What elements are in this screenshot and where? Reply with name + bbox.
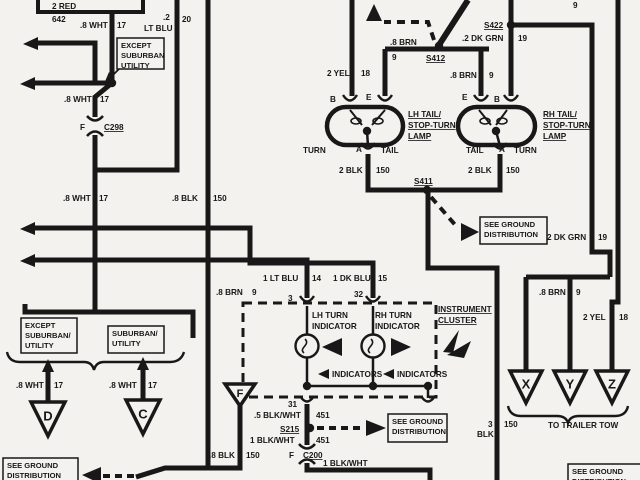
w2yel18-b: 2 YEL <box>583 313 606 322</box>
wiring-diagram-page: XYZDCFEXCEPTSUBURBANUTILITYSEE GROUNDDIS… <box>0 0 640 480</box>
cluster-dot-2 <box>369 382 377 390</box>
callout-except-suburban-utility-top-line-1: SUBURBAN <box>121 51 164 60</box>
connector-d-letter: D <box>43 408 52 423</box>
lh-turn-lbl: TURN <box>303 146 326 155</box>
lamp-lh-dot <box>363 127 371 135</box>
rh-lamp-2: STOP-TURN <box>543 121 591 130</box>
rh-tail-lbl: TAIL <box>466 146 484 155</box>
circuit-642: 642 <box>52 15 66 24</box>
pin-31: 31 <box>288 400 298 409</box>
indicators-1: INDICATORS <box>332 370 383 379</box>
wire-2red: 2 RED <box>52 2 76 11</box>
cluster-dot-3 <box>424 382 432 390</box>
w3blk150: 150 <box>504 420 518 429</box>
connector-c-letter: C <box>138 406 148 421</box>
w8wht17-c2: 17 <box>99 194 109 203</box>
callout-see-ground-distribution-1-line-0: SEE GROUND <box>484 220 536 229</box>
w8brn9-d: .8 BRN <box>539 288 566 297</box>
rh-turn-ind-1: RH TURN <box>375 311 412 320</box>
callout-suburban-utility-line-0: SUBURBAN/ <box>112 329 158 338</box>
callout-except-suburban-utility-bottom-line-1: SUBURBAN/ <box>25 331 71 340</box>
w2yel18-b2: 18 <box>619 313 629 322</box>
indicators-2: INDICATORS <box>397 370 448 379</box>
callout-see-ground-distribution-2-line-0: SEE GROUND <box>392 417 444 426</box>
callout-except-suburban-utility-top-line-0: EXCEPT <box>121 41 152 50</box>
w1dkblu15: 1 DK BLU <box>333 274 371 283</box>
splice-dot-s412 <box>435 42 443 50</box>
w8wht17-c: .8 WHT <box>63 194 91 203</box>
w8blk150-a2: 150 <box>213 194 227 203</box>
w9-top: 9 <box>573 1 578 10</box>
cluster-dot-1 <box>303 382 311 390</box>
w2yel18-a2: 18 <box>361 69 371 78</box>
conn-c298: C298 <box>104 123 124 132</box>
w2ltblu-20: 20 <box>182 15 192 24</box>
w1dkblu15-2: 15 <box>378 274 388 283</box>
callout-see-ground-distribution-3-line-1: DISTRIBUTION <box>7 471 61 480</box>
splice-s412: S412 <box>426 54 446 63</box>
w5blkwht: .5 BLK/WHT <box>254 411 301 420</box>
lh-pin-b: B <box>330 95 336 104</box>
w8wht17-d: .8 WHT <box>16 381 44 390</box>
w8wht17-e: .8 WHT <box>109 381 137 390</box>
w2yel18-a: 2 YEL <box>327 69 350 78</box>
splice-dot-s215 <box>306 424 314 432</box>
w8wht17-a: .8 WHT <box>80 21 108 30</box>
w8wht17-e2: 17 <box>148 381 158 390</box>
pin-32: 32 <box>354 290 364 299</box>
w2dkgrn19-b2: 19 <box>598 233 608 242</box>
w8wht17-b2: 17 <box>100 95 110 104</box>
rh-lamp-1: RH TAIL/ <box>543 110 578 119</box>
w8blk150-a: .8 BLK <box>172 194 198 203</box>
w8brn9-c: .8 BRN <box>216 288 243 297</box>
callout-except-suburban-utility-top-line-2: UTILITY <box>121 61 150 70</box>
conn-c200: C200 <box>303 451 323 460</box>
w1blkwht-a: 1 BLK/WHT <box>250 436 295 445</box>
rh-pin-b: B <box>494 95 500 104</box>
splice-s422: S422 <box>484 21 504 30</box>
w2dkgrn19-a2: 19 <box>518 34 528 43</box>
lamp-rh-dot <box>492 127 500 135</box>
instr-1: INSTRUMENT <box>438 305 492 314</box>
w8blk150-b2: 150 <box>246 451 260 460</box>
w1blkwht-a2: 451 <box>316 436 330 445</box>
rh-turn-lbl: TURN <box>514 146 537 155</box>
w2blk150-b2: 150 <box>506 166 520 175</box>
callout-see-ground-distribution-3-line-0: SEE GROUND <box>7 461 59 470</box>
callout-see-ground-distribution-2-line-1: DISTRIBUTION <box>392 427 446 436</box>
lh-pin-e: E <box>366 93 372 102</box>
connector-f-letter: F <box>237 388 244 400</box>
w8wht17-a2: 17 <box>117 21 127 30</box>
splice-dot-s411 <box>423 186 431 194</box>
lh-turn-ind-2: INDICATOR <box>312 322 357 331</box>
w2blk150-b: 2 BLK <box>468 166 492 175</box>
w8brn9-c2: 9 <box>252 288 257 297</box>
w1ltblu14-2: 14 <box>312 274 322 283</box>
conn-f1: F <box>80 123 85 132</box>
w1ltblu14: 1 LT BLU <box>263 274 298 283</box>
splice-s411: S411 <box>414 177 433 186</box>
callout-except-suburban-utility-bottom-line-2: UTILITY <box>25 341 54 350</box>
w8brn9-b2: 9 <box>489 71 494 80</box>
w2ltblu-ga: .2 <box>163 13 170 22</box>
w2blk150-a2: 150 <box>376 166 390 175</box>
lh-pin-a: A <box>356 145 362 154</box>
w8blk150-b: .8 BLK <box>209 451 235 460</box>
w5blkwht-2: 451 <box>316 411 330 420</box>
rh-turn-ind-2: INDICATOR <box>375 322 420 331</box>
lh-lamp-1: LH TAIL/ <box>408 110 442 119</box>
w2ltblu: LT BLU <box>144 24 173 33</box>
lh-lamp-3: LAMP <box>408 132 432 141</box>
to-trailer-tow: TO TRAILER TOW <box>548 421 618 430</box>
w8wht17-d2: 17 <box>54 381 64 390</box>
wiring-diagram-canvas: XYZDCFEXCEPTSUBURBANUTILITYSEE GROUNDDIS… <box>0 0 640 480</box>
splice-s215: S215 <box>280 425 300 434</box>
connector-x-letter: X <box>522 376 531 391</box>
w8brn9-a2: 9 <box>392 53 397 62</box>
lh-tail-lbl: TAIL <box>381 146 399 155</box>
callout-except-suburban-utility-bottom-line-0: EXCEPT <box>25 321 56 330</box>
conn-f2: F <box>289 451 294 460</box>
callout-suburban-utility-line-1: UTILITY <box>112 339 141 348</box>
w2blk150-a: 2 BLK <box>339 166 363 175</box>
w8brn9-b: .8 BRN <box>450 71 477 80</box>
rh-pin-e: E <box>462 93 468 102</box>
w8brn9-d2: 9 <box>576 288 581 297</box>
connector-y-letter: Y <box>566 376 575 391</box>
lh-turn-ind-1: LH TURN <box>312 311 348 320</box>
rh-pin-a: A <box>499 145 505 154</box>
w8wht17-b: .8 WHT <box>64 95 92 104</box>
w8brn9-a: .8 BRN <box>390 38 417 47</box>
connector-z-letter: Z <box>608 376 616 391</box>
w1blkwht-b: 1 BLK/WHT <box>323 459 368 468</box>
lh-lamp-2: STOP-TURN <box>408 121 456 130</box>
w2dkgrn19-a: .2 DK GRN <box>462 34 503 43</box>
rh-lamp-3: LAMP <box>543 132 567 141</box>
pin-3: 3 <box>288 294 293 303</box>
w3blk-2: BLK <box>477 430 494 439</box>
callout-see-ground-distribution-1-line-1: DISTRIBUTION <box>484 230 538 239</box>
callout-see-ground-distribution-4-line-0: SEE GROUND <box>572 467 624 476</box>
splice-dot-s422 <box>507 21 515 29</box>
w2dkgrn19-b: 2 DK GRN <box>547 233 586 242</box>
w3blk-1: 3 <box>488 420 493 429</box>
instr-2: CLUSTER <box>438 316 477 325</box>
